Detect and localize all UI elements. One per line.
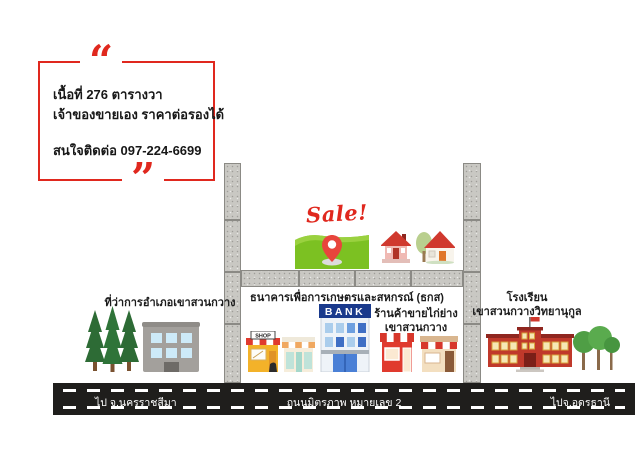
bank-label: ธนาคารเพื่อการเกษตรและสหกรณ์ (ธกส) bbox=[250, 291, 444, 305]
concrete-seam bbox=[354, 271, 356, 286]
road-direction-right: ไปจ.อุดรธานี bbox=[551, 394, 610, 411]
ad-contact-text: สนใจติดต่อ 097-224-6699 bbox=[53, 141, 207, 161]
close-quote-icon: ” bbox=[122, 169, 164, 191]
concrete-seam bbox=[464, 323, 480, 325]
concrete-seam bbox=[464, 219, 480, 221]
concrete-seam bbox=[464, 271, 480, 273]
cypress-trees-icon bbox=[85, 306, 140, 372]
house-icon bbox=[381, 231, 411, 263]
side-road-right bbox=[463, 163, 481, 383]
concrete-seam bbox=[225, 271, 240, 273]
house-with-tree-icon bbox=[415, 229, 455, 264]
ad-owner-text: เจ้าของขายเอง ราคาต่อรองได้ bbox=[53, 105, 207, 125]
school-label-line1: โรงเรียน bbox=[472, 291, 581, 305]
trees-icon bbox=[572, 326, 620, 372]
road-lane-marking bbox=[63, 389, 625, 392]
road-direction-left: ไป จ.นครราชสีมา bbox=[95, 394, 177, 411]
bank-building-icon: BANK bbox=[319, 304, 371, 372]
district-office-building-icon bbox=[142, 319, 200, 372]
cross-road bbox=[241, 270, 463, 287]
school-flag-icon bbox=[531, 317, 540, 322]
school-label: โรงเรียน เขาสวนกวางวิทยานุกูล bbox=[472, 291, 581, 319]
ad-quote-box: “ ” เนื้อที่ 276 ตารางวา เจ้าของขายเอง ร… bbox=[38, 61, 215, 181]
highway: ไป จ.นครราชสีมา ถนนมิตรภาพ หมายเลข 2 ไปจ… bbox=[53, 383, 635, 415]
concrete-seam bbox=[225, 323, 240, 325]
land-sale-map: “ ” เนื้อที่ 276 ตารางวา เจ้าของขายเอง ร… bbox=[0, 0, 640, 474]
shop-sign-text: SHOP bbox=[255, 333, 271, 339]
shop-storefront-icon bbox=[282, 337, 315, 372]
concrete-seam bbox=[225, 219, 240, 221]
chicken-shop-label-line1: ร้านค้าขายไก่ย่าง bbox=[374, 307, 457, 321]
red-shop-storefront-icon bbox=[380, 333, 414, 372]
sale-sign-text: Sale! bbox=[305, 199, 368, 227]
ad-area-text: เนื้อที่ 276 ตารางวา bbox=[53, 85, 207, 105]
bank-sign-text: BANK bbox=[325, 306, 365, 318]
road-name: ถนนมิตรภาพ หมายเลข 2 bbox=[287, 394, 402, 411]
concrete-seam bbox=[410, 271, 412, 286]
land-plot-with-pin bbox=[294, 228, 370, 270]
school-building-icon bbox=[486, 317, 574, 372]
open-quote-icon: “ bbox=[80, 51, 122, 73]
shop-storefront-icon bbox=[419, 336, 459, 372]
side-road-left bbox=[224, 163, 241, 383]
chicken-shop-label: ร้านค้าขายไก่ย่าง เขาสวนกวาง bbox=[374, 307, 457, 335]
shop-storefront-icon: SHOP bbox=[246, 331, 280, 372]
concrete-seam bbox=[298, 271, 300, 286]
